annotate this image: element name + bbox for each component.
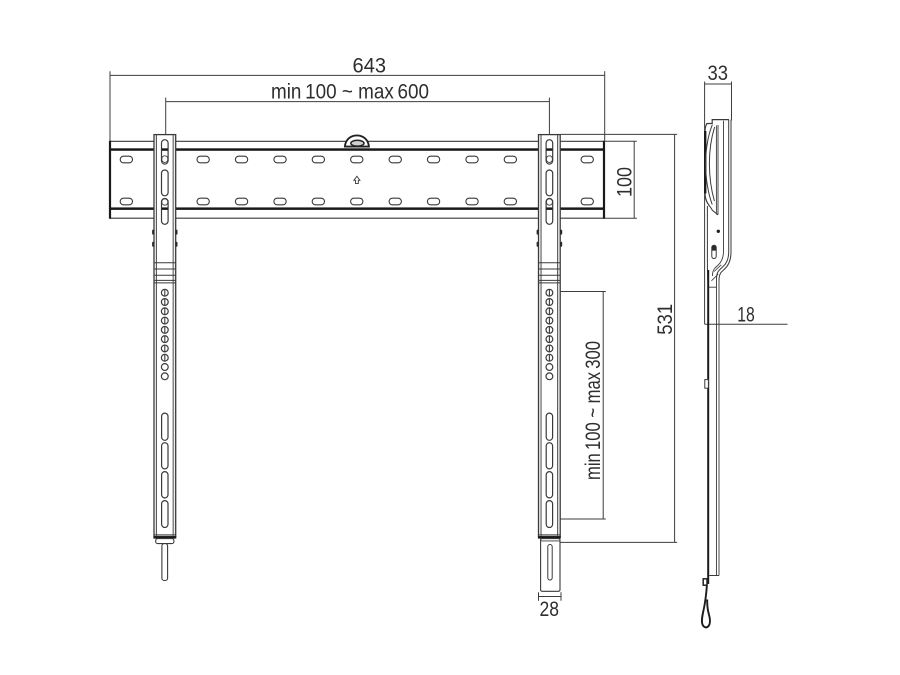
svg-text:18: 18 <box>737 303 755 327</box>
svg-text:643: 643 <box>353 54 387 78</box>
svg-text:33: 33 <box>708 61 729 85</box>
svg-text:531: 531 <box>653 304 677 335</box>
svg-text:min 100 ~ max 600: min 100 ~ max 600 <box>271 80 429 104</box>
svg-text:min 100 ~ max 300: min 100 ~ max 300 <box>581 341 605 480</box>
svg-text:28: 28 <box>540 597 560 621</box>
svg-text:100: 100 <box>613 167 637 197</box>
